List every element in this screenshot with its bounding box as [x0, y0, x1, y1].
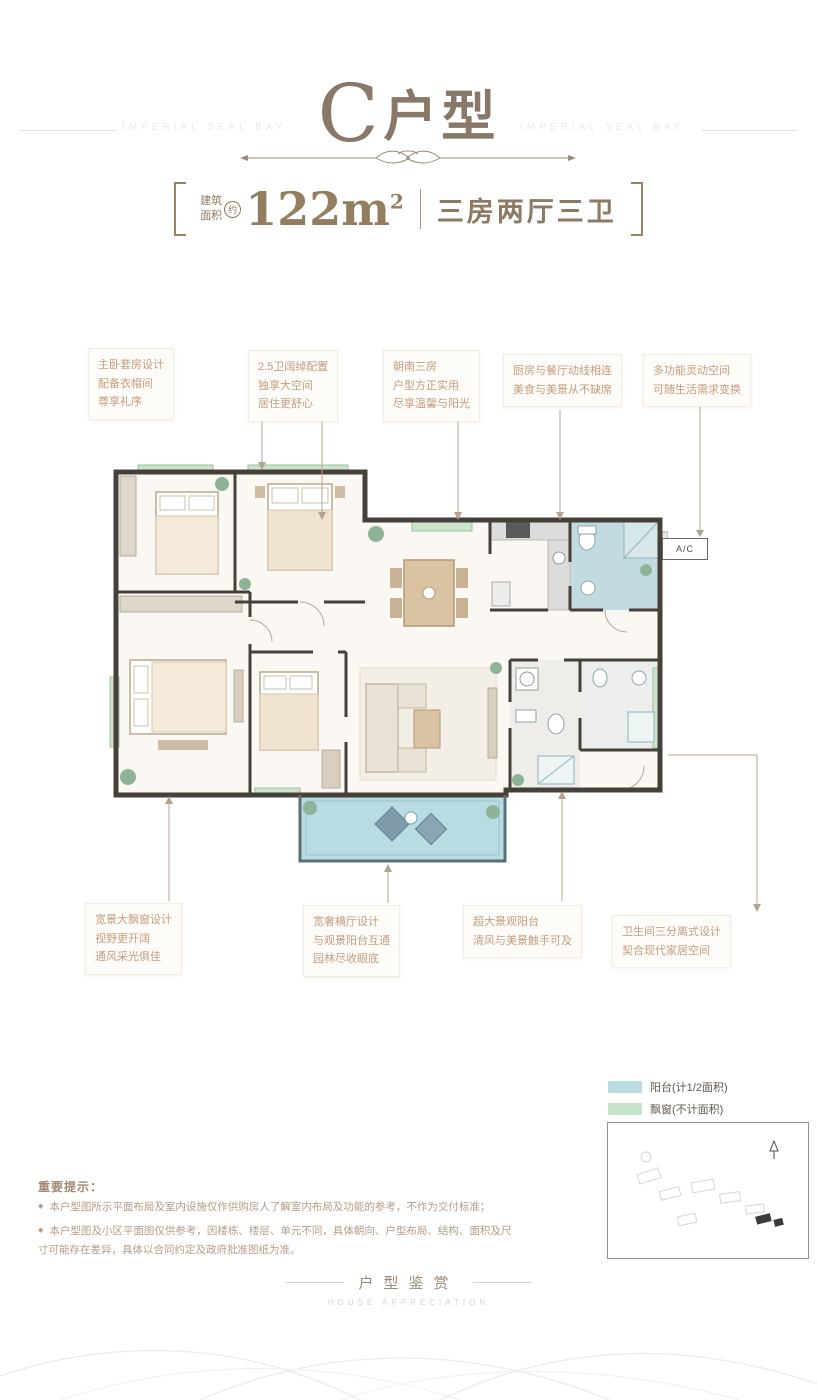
highlighted-building [755, 1213, 784, 1227]
north-arrow-icon [770, 1141, 778, 1159]
callout-bathrooms: 2.5卫阔绰配置 独享大空间 居住更舒心 [248, 350, 338, 422]
area-label: 建筑 面积 [200, 194, 222, 224]
square-superscript: 2 [390, 190, 404, 214]
callout-master-suite: 主卧套房设计 配备衣帽间 尊享礼序 [88, 348, 174, 420]
baywindow-swatch [608, 1103, 642, 1115]
plant-icon [120, 769, 136, 785]
bed-icon [156, 492, 218, 574]
flourish-divider-icon [238, 146, 578, 170]
disclaimer-item: ◆本户型图及小区平面图仅供参考，因楼栋、楼层、单元不同，具体朝向、户型布局、结构… [38, 1222, 516, 1261]
unit-type-label: 户型 [383, 84, 499, 148]
area-value: 122m2 [245, 186, 404, 232]
desk [322, 750, 340, 788]
callout-kitchen-dining: 厨房与餐厅动线相连 美食与美景从不缺席 [503, 354, 622, 407]
page-title: C 户型 [0, 72, 817, 154]
site-minimap [607, 1122, 809, 1259]
floor-plan [108, 462, 668, 872]
callout-bay-window: 宽景大飘窗设计 视野更开阔 通风采光俱佳 [85, 903, 182, 975]
bullet-icon: ◆ [38, 1203, 43, 1210]
approx-circle: 约 [224, 201, 241, 218]
bracket-left [174, 182, 186, 236]
callout-living-hall: 宽奢横厅设计 与观景阳台互通 园林尽收眼底 [303, 905, 400, 977]
plant-icon [239, 578, 251, 590]
wave-decoration [0, 1316, 817, 1400]
disclaimer-item: ◆本户型图所示平面布局及室内设施仅作供购房人了解室内布局及功能的参考，不作为交付… [38, 1198, 516, 1217]
callout-split-bathroom: 卫生间三分离式设计 契合现代家居空间 [612, 915, 731, 968]
floorplan-poster: IMPERIAL SEAL BAY IMPERIAL SEAL BAY C 户型… [0, 0, 817, 1400]
area-label-line1: 建筑 [200, 194, 222, 209]
callout-balcony: 超大景观阳台 清风与美景触手可及 [463, 905, 582, 958]
plant-icon [490, 662, 502, 674]
footer: 户型鉴赏 HOUSE APPRECIATION [0, 1272, 817, 1307]
legend-baywindow: 飘窗(不计面积) [608, 1102, 723, 1116]
legend-balcony: 阳台(计1/2面积) [608, 1080, 728, 1094]
tv-console [234, 670, 243, 722]
bed-icon [260, 672, 318, 750]
area-label-line2: 面积 [200, 209, 222, 224]
tv-console [488, 688, 497, 758]
room-layout-text: 三房两厅三卫 [437, 190, 617, 229]
footer-rule-left [286, 1282, 344, 1283]
callout-three-bedrooms: 朝南三房 户型方正实用 尽享温馨与阳光 [383, 350, 480, 422]
bullet-icon: ◆ [38, 1227, 43, 1234]
bracket-right [631, 182, 643, 236]
footer-subtitle: HOUSE APPRECIATION [0, 1298, 817, 1307]
wardrobe [120, 476, 136, 556]
building-outlines [637, 1152, 764, 1226]
plant-icon [215, 477, 229, 491]
callout-flex-space: 多功能灵动空间 可随生活需求变换 [643, 354, 751, 407]
balcony-swatch [608, 1081, 642, 1093]
footer-title: 户型鉴赏 [358, 1272, 458, 1293]
footer-rule-right [473, 1282, 531, 1283]
plant-icon [368, 526, 384, 542]
bed-icon [255, 484, 345, 570]
badge-divider [420, 189, 421, 229]
ac-label-box: A/C [662, 538, 708, 560]
area-badge: 建筑 面积 约 122m2 三房两厅三卫 [0, 182, 817, 236]
disclaimer-heading: 重要提示： [38, 1178, 103, 1195]
wardrobe [120, 596, 242, 612]
